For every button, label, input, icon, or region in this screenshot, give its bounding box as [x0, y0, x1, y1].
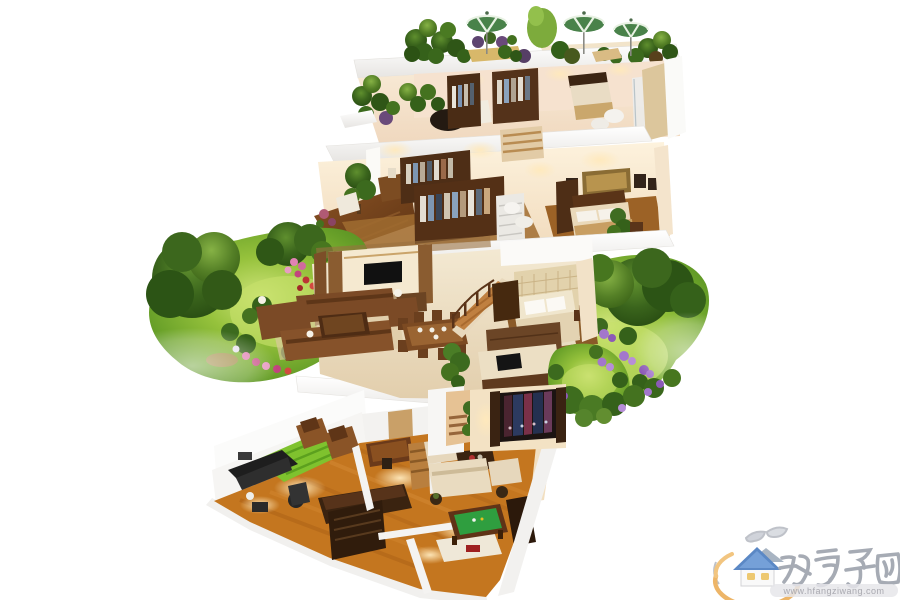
- svg-text:www.hfangziwang.com: www.hfangziwang.com: [782, 586, 884, 596]
